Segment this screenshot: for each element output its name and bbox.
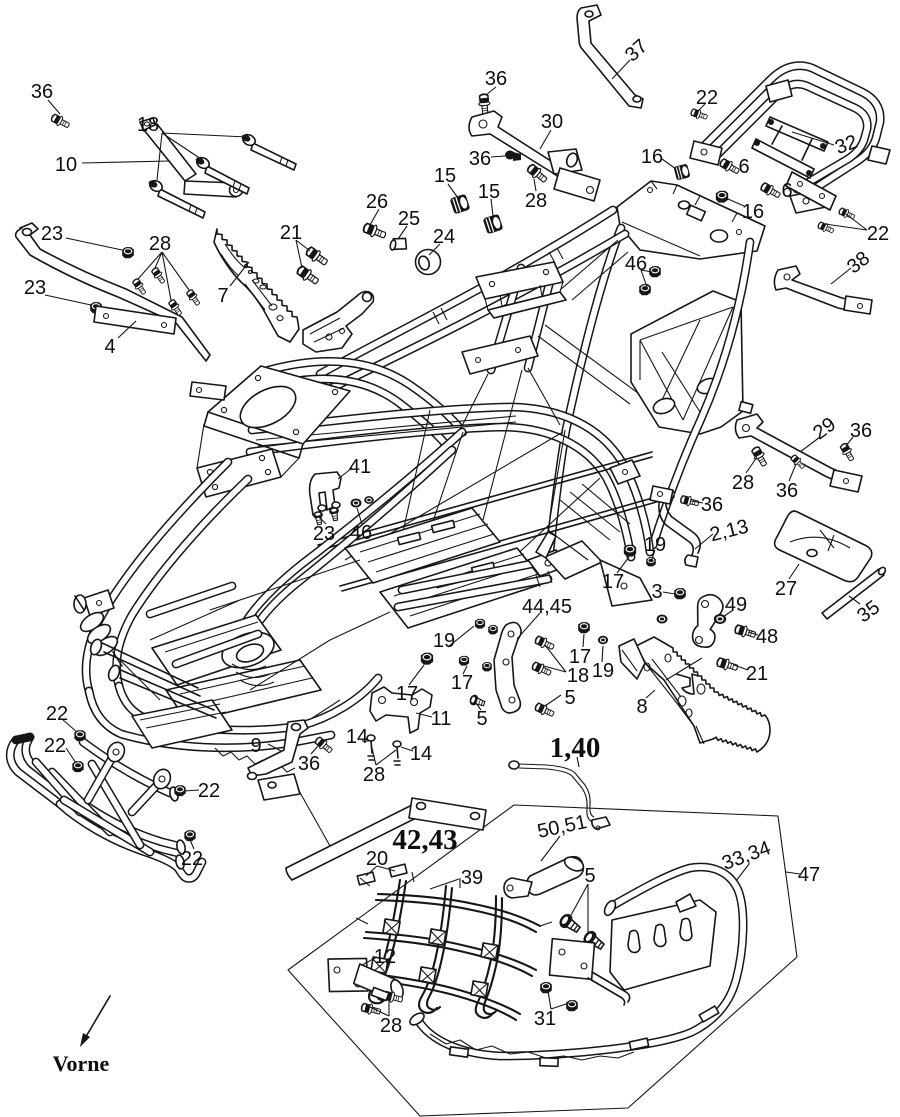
svg-text:39: 39 [461,867,483,889]
svg-text:27: 27 [775,578,797,600]
svg-text:44,45: 44,45 [522,596,572,618]
svg-text:36: 36 [776,480,798,502]
svg-text:6: 6 [781,180,792,202]
svg-text:17: 17 [451,672,473,694]
svg-text:8: 8 [636,696,647,718]
svg-text:28: 28 [149,233,171,255]
svg-text:15: 15 [478,181,500,203]
svg-text:50,51: 50,51 [535,811,589,843]
svg-text:18: 18 [567,665,589,687]
svg-text:41: 41 [349,456,371,478]
svg-text:47: 47 [798,864,820,886]
svg-text:7: 7 [217,285,228,307]
svg-text:28: 28 [732,472,754,494]
svg-text:36: 36 [701,494,723,516]
svg-text:19: 19 [644,534,666,556]
svg-text:29: 29 [809,413,840,444]
svg-text:30: 30 [541,111,563,133]
svg-text:23: 23 [313,523,335,545]
svg-text:21: 21 [746,663,768,685]
svg-text:9: 9 [250,735,261,757]
svg-text:22: 22 [44,735,66,757]
svg-text:31: 31 [534,1008,556,1030]
svg-text:15: 15 [434,165,456,187]
svg-text:28: 28 [363,764,385,786]
svg-text:19: 19 [592,660,614,682]
svg-text:36: 36 [298,753,320,775]
svg-text:19: 19 [433,630,455,652]
svg-text:21: 21 [280,222,302,244]
svg-text:38: 38 [843,247,874,278]
svg-text:49: 49 [725,594,747,616]
svg-text:22: 22 [696,87,718,109]
svg-text:22: 22 [198,780,220,802]
svg-text:18: 18 [137,114,159,136]
svg-text:36: 36 [469,148,491,170]
svg-text:23: 23 [24,277,46,299]
svg-text:Vorne: Vorne [53,1051,110,1076]
svg-text:1,40: 1,40 [550,732,601,764]
svg-text:11: 11 [431,708,452,730]
svg-text:20: 20 [366,848,388,870]
svg-text:33,34: 33,34 [719,837,774,875]
svg-text:5: 5 [584,865,595,887]
svg-text:23: 23 [41,223,63,245]
svg-text:16: 16 [742,201,764,223]
svg-text:3: 3 [651,581,662,603]
svg-text:14: 14 [410,743,432,765]
svg-text:5: 5 [564,687,575,709]
svg-text:25: 25 [398,208,420,230]
svg-text:5: 5 [476,708,487,730]
svg-text:24: 24 [433,226,455,248]
svg-text:22: 22 [181,848,203,870]
svg-text:36: 36 [850,420,872,442]
svg-text:4: 4 [104,336,115,358]
svg-text:28: 28 [380,1015,402,1037]
svg-text:17: 17 [602,571,624,593]
svg-text:42,43: 42,43 [392,824,457,856]
svg-text:26: 26 [366,191,388,213]
svg-text:2,13: 2,13 [708,516,751,547]
svg-text:46: 46 [625,253,647,275]
svg-text:36: 36 [31,81,53,103]
svg-text:16: 16 [641,146,663,168]
svg-text:37: 37 [621,35,652,66]
svg-text:35: 35 [853,596,884,627]
svg-text:14: 14 [346,726,368,748]
svg-text:48: 48 [756,626,778,648]
svg-text:22: 22 [867,223,889,245]
svg-text:28: 28 [525,190,547,212]
svg-text:10: 10 [55,154,77,176]
svg-text:46: 46 [350,522,372,544]
svg-text:12: 12 [374,946,396,968]
svg-text:36: 36 [485,68,507,90]
svg-text:6: 6 [738,156,749,178]
svg-text:22: 22 [46,703,68,725]
svg-text:17: 17 [396,683,418,705]
